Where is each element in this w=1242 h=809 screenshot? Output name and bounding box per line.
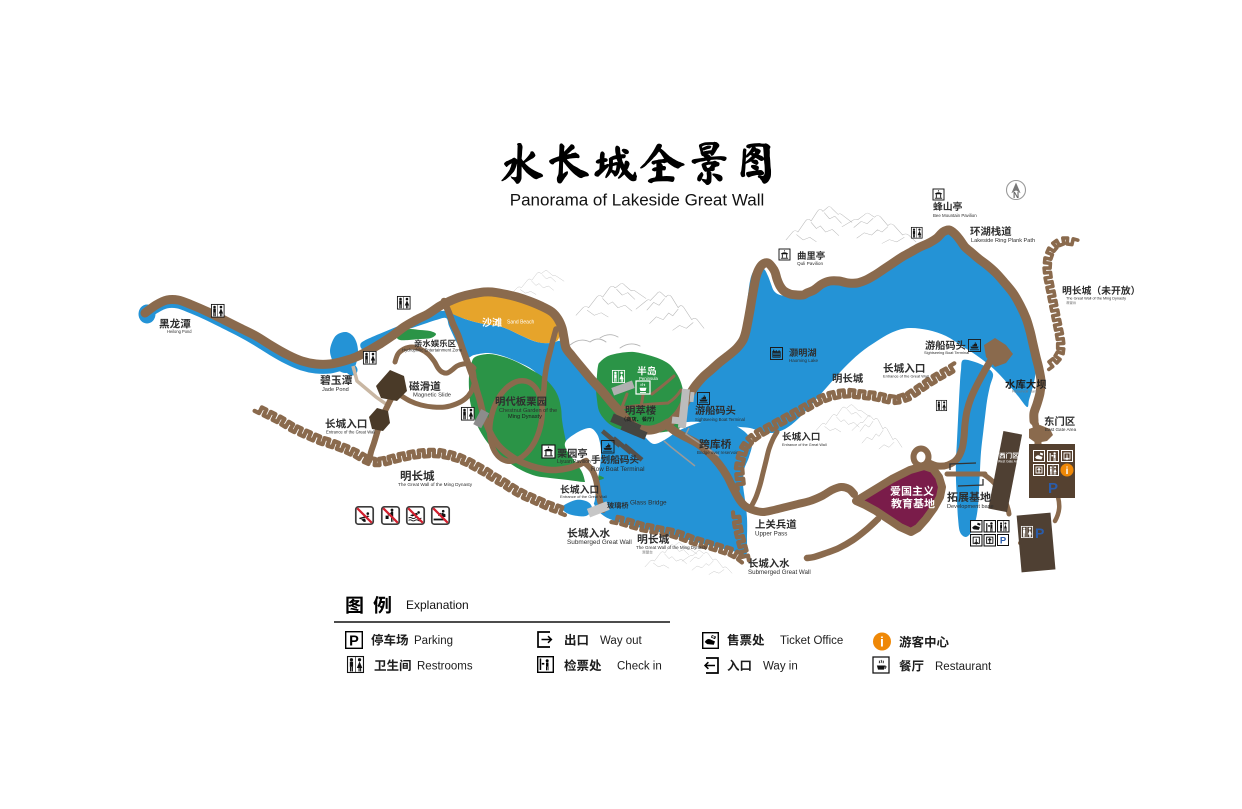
svg-text:P: P [1000, 536, 1007, 547]
svg-text:Haoming Lake: Haoming Lake [789, 358, 819, 363]
svg-text:Bridge over reservoir: Bridge over reservoir [697, 450, 738, 455]
svg-text:Upper Pass: Upper Pass [755, 531, 787, 538]
svg-text:Explanation: Explanation [406, 598, 469, 612]
svg-text:Liyuan Pavilion: Liyuan Pavilion [557, 459, 591, 465]
svg-text:Way out: Way out [600, 635, 643, 647]
svg-text:Entrance of the Great Wall: Entrance of the Great Wall [883, 374, 929, 379]
svg-text:Sightseeing Boat Terminal: Sightseeing Boat Terminal [695, 417, 745, 422]
svg-text:Lakeside Ring Plank Path: Lakeside Ring Plank Path [971, 238, 1035, 244]
svg-text:The Great Wall of the Ming Dyn: The Great Wall of the Ming Dynasty [398, 482, 473, 487]
svg-text:West Gate Area: West Gate Area [998, 460, 1021, 464]
svg-text:Ming Dynasty: Ming Dynasty [508, 414, 542, 420]
svg-text:Check in: Check in [617, 661, 662, 673]
svg-text:Development base: Development base [947, 504, 994, 510]
svg-text:Hydrophilic Entertainment Zone: Hydrophilic Entertainment Zone [402, 348, 463, 353]
svg-text:Submerged Great Wall: Submerged Great Wall [567, 539, 632, 546]
svg-text:Heilong Pond: Heilong Pond [167, 329, 192, 334]
svg-text:Panorama of Lakeside Great Wal: Panorama of Lakeside Great Wall [510, 191, 765, 210]
svg-text:P: P [1048, 480, 1058, 497]
svg-text:Parking: Parking [414, 635, 453, 647]
svg-text:Way in: Way in [763, 661, 798, 673]
svg-text:Sightseeing Boat Terminal: Sightseeing Boat Terminal [924, 350, 969, 355]
svg-text:East Gate Area: East Gate Area [1045, 427, 1077, 432]
svg-text:Row Boat Terminal: Row Boat Terminal [591, 466, 645, 473]
svg-text:Jade Pond: Jade Pond [322, 387, 349, 393]
svg-text:Reservoir dam: Reservoir dam [1012, 389, 1037, 394]
svg-text:Entrance of the Great Wall: Entrance of the Great Wall [560, 494, 607, 499]
svg-text:Restaurant: Restaurant [935, 661, 992, 673]
svg-text:P: P [349, 634, 359, 650]
svg-text:Glass Bridge: Glass Bridge [630, 500, 667, 507]
svg-text:Peninsula: Peninsula [639, 376, 658, 381]
svg-text:Quli Pavilion: Quli Pavilion [797, 261, 823, 266]
svg-text:i: i [1066, 466, 1069, 477]
svg-text:The Great Wall of the Ming Dyn: The Great Wall of the Ming Dynasty [636, 545, 708, 550]
svg-text:Magnetic Slide: Magnetic Slide [413, 393, 451, 399]
svg-text:Submerged Great Wall: Submerged Great Wall [748, 569, 811, 576]
svg-text:i: i [880, 634, 884, 650]
svg-text:Sand Beach: Sand Beach [507, 320, 534, 326]
svg-text:P: P [1035, 525, 1044, 541]
svg-text:N: N [1013, 190, 1019, 200]
svg-text:Ticket Office: Ticket Office [780, 635, 843, 647]
svg-text:The Great Wall of the Ming Dyn: The Great Wall of the Ming Dynasty [1066, 297, 1126, 301]
svg-text:Bee Mountain Pavilion: Bee Mountain Pavilion [933, 213, 977, 218]
svg-text:Entrance of the Great Wall: Entrance of the Great Wall [782, 443, 827, 447]
svg-text:Entrance of the Great Wall: Entrance of the Great Wall [326, 430, 375, 435]
svg-text:Restrooms: Restrooms [417, 661, 473, 673]
